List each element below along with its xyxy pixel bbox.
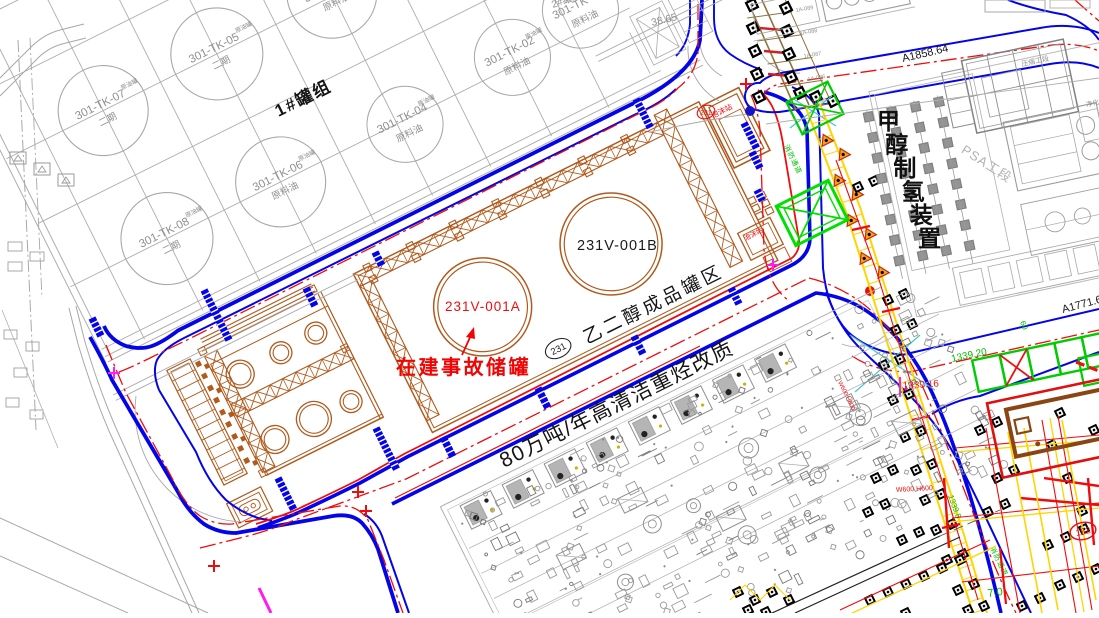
svg-text:在建事故储罐: 在建事故储罐 — [396, 355, 531, 379]
svg-text:231: 231 — [700, 110, 712, 117]
svg-text:231V-001A: 231V-001A — [445, 299, 521, 314]
svg-text:醇: 醇 — [885, 132, 908, 158]
svg-text:氢: 氢 — [902, 179, 925, 205]
svg-text:7.0: 7.0 — [987, 586, 1004, 600]
svg-text:置: 置 — [918, 226, 941, 252]
svg-text:制: 制 — [893, 155, 916, 181]
svg-text:装: 装 — [910, 202, 933, 228]
svg-text:231V-001B: 231V-001B — [577, 238, 658, 254]
svg-text:甲: 甲 — [877, 108, 900, 134]
